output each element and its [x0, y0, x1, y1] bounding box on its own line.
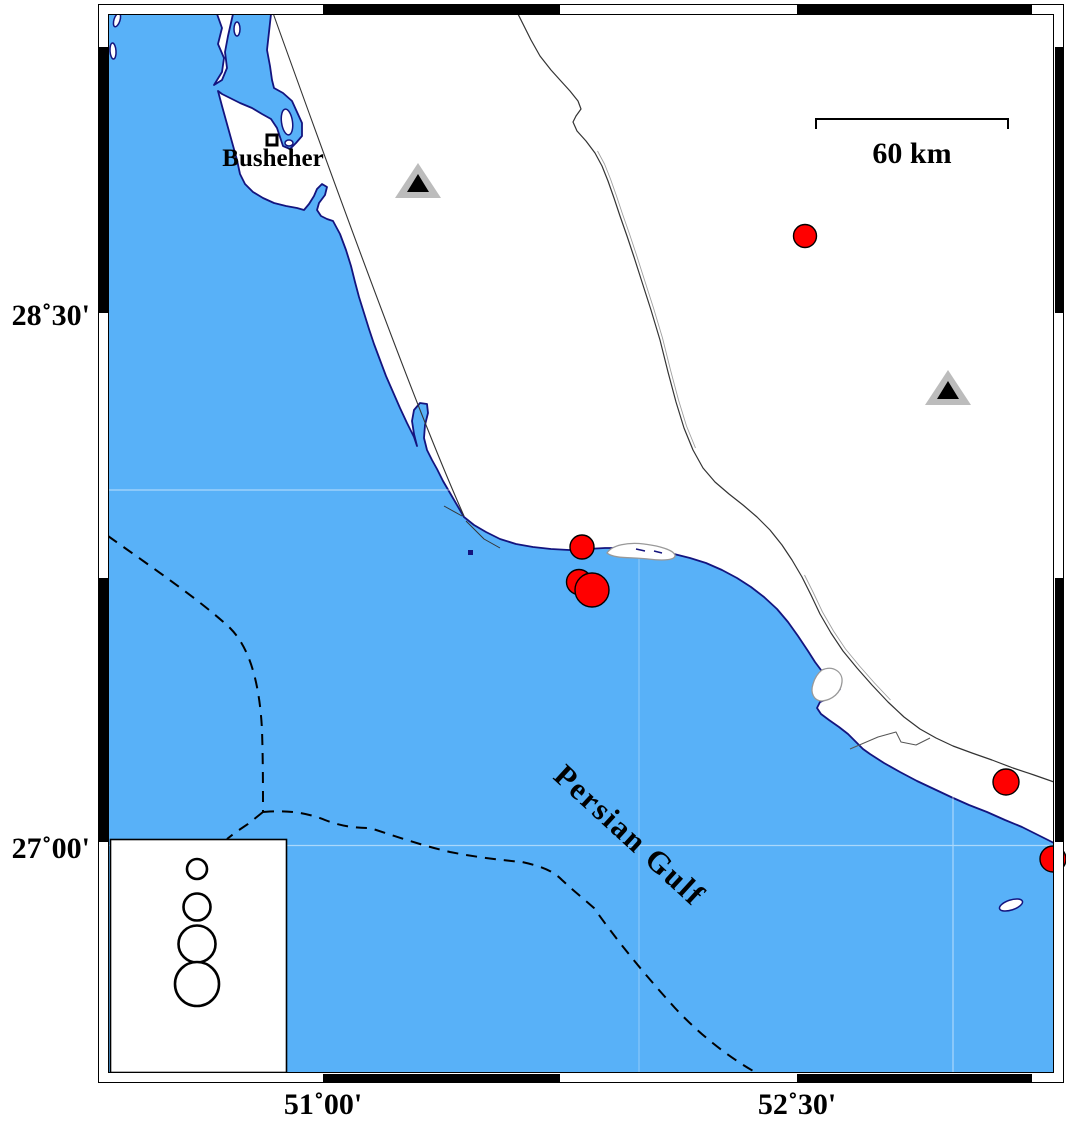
frame-black-segment	[323, 5, 560, 14]
coastal-islet	[468, 550, 473, 555]
frame-black-segment	[323, 1074, 560, 1083]
frame-black-segment	[797, 1074, 1032, 1083]
coast-connector-line	[850, 732, 930, 749]
legend-circle	[187, 859, 207, 879]
legend-circle	[179, 926, 216, 963]
scale-bar: 60 km	[816, 119, 1008, 170]
city-group: Busheher	[222, 135, 323, 172]
legend-circle	[175, 962, 219, 1006]
earthquake-marker	[794, 225, 817, 248]
frame-black-segment	[99, 578, 108, 842]
station-marker	[925, 370, 971, 405]
legend-box	[111, 840, 287, 1073]
station-marker	[395, 163, 441, 198]
axis-label-lat-2: 27˚00'	[12, 832, 90, 865]
city-label: Busheher	[222, 145, 323, 172]
map-canvas: Busheher Persian Gulf 60 km 28˚30' 27	[0, 0, 1066, 1123]
earthquake-marker	[570, 535, 594, 559]
axis-label-lon-1: 51˚00'	[284, 1088, 362, 1121]
legend-circle	[184, 894, 211, 921]
islet	[234, 22, 240, 36]
city-marker	[267, 135, 277, 145]
frame-black-segment	[99, 47, 108, 313]
scale-bar-label: 60 km	[872, 137, 951, 170]
map-page: Busheher Persian Gulf 60 km 28˚30' 27	[0, 0, 1066, 1123]
stations-layer	[395, 163, 971, 405]
earthquake-marker	[575, 573, 609, 607]
frame-black-segment	[1055, 578, 1064, 842]
axis-label-lon-2: 52˚30'	[758, 1088, 836, 1121]
frame-black-segment	[1055, 47, 1064, 313]
frame-black-segment	[797, 5, 1032, 14]
earthquake-marker	[993, 769, 1019, 795]
axis-label-lat-1: 28˚30'	[12, 299, 90, 332]
scale-bar-line	[816, 119, 1008, 129]
islet	[109, 43, 116, 59]
